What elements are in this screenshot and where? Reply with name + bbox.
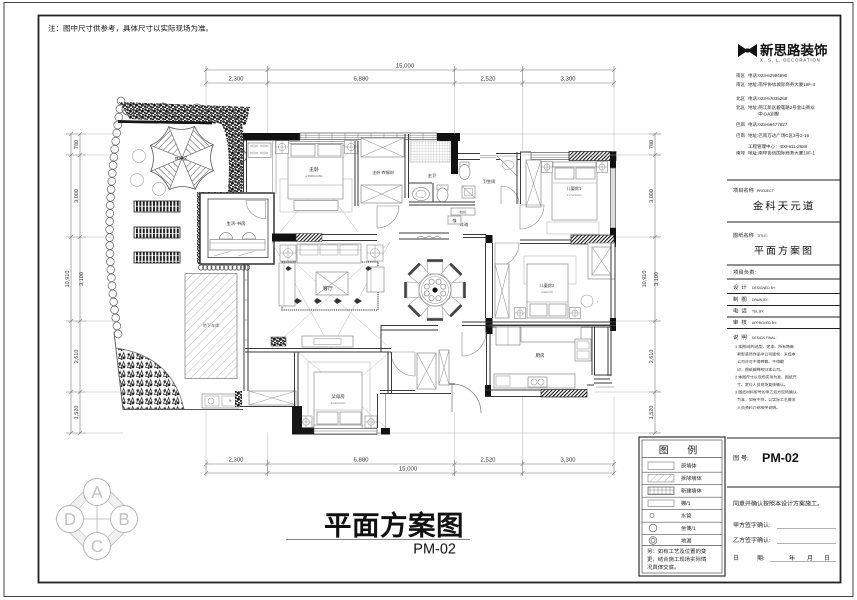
svg-text:项目负责:: 项目负责:	[733, 269, 756, 276]
svg-text:卫生间: 卫生间	[483, 179, 496, 184]
svg-text:月: 月	[807, 555, 813, 562]
svg-text:新思路装饰: 新思路装饰	[760, 43, 828, 58]
svg-text:制 图: 制 图	[733, 296, 747, 303]
svg-text:年: 年	[789, 554, 795, 562]
svg-text:日: 日	[733, 555, 739, 562]
svg-text:3.34x3.0m: 3.34x3.0m	[541, 291, 553, 294]
svg-text:寸、定位人员现场复核确认。: 寸、定位人员现场复核确认。	[735, 382, 788, 387]
svg-text:1,520: 1,520	[74, 406, 80, 420]
svg-text:TITLE:: TITLE:	[757, 234, 768, 238]
svg-text:地下车库: 地下车库	[203, 323, 220, 328]
svg-text:3,300: 3,300	[560, 457, 576, 464]
svg-text:日: 日	[824, 555, 830, 562]
svg-text:审 核: 审 核	[733, 319, 747, 326]
svg-text:6,880: 6,880	[353, 457, 369, 464]
svg-text:10,910: 10,910	[642, 271, 648, 288]
svg-text:2,520: 2,520	[480, 76, 496, 83]
svg-text:2,610: 2,610	[74, 350, 80, 364]
svg-text:X. S. L. DECORATION: X. S. L. DECORATION	[760, 58, 821, 63]
svg-text:北区: 北区	[736, 105, 745, 110]
svg-text:TEL BY:: TEL BY:	[752, 310, 764, 314]
svg-text:南坪: 南坪	[736, 151, 745, 156]
svg-text:1 本图/结构选型、定本、所有隐蔽: 1 本图/结构选型、定本、所有隐蔽	[735, 344, 794, 349]
svg-text:注：图中尺寸供参考，具体尺寸以实际现场为准。: 注：图中尺寸供参考，具体尺寸以实际现场为准。	[48, 24, 213, 33]
svg-text:拆除墙体: 拆除墙体	[681, 475, 703, 482]
svg-text:10,910: 10,910	[65, 271, 71, 288]
svg-text:为准，如有不符，以实际工艺要求: 为准，如有不符，以实际工艺要求	[735, 397, 796, 402]
svg-text:巴南: 巴南	[736, 122, 745, 127]
svg-text:地址:南坪协信城际商务大厦18F-3: 地址:南坪协信城际商务大厦18F-3	[748, 82, 816, 87]
svg-text:电话:023-62984890: 电话:023-62984890	[748, 73, 788, 78]
svg-text:电 话: 电 话	[733, 308, 747, 315]
svg-text:水管: 水管	[681, 513, 691, 520]
svg-text:休闲区: 休闲区	[175, 156, 188, 161]
svg-text:南区: 南区	[736, 73, 745, 78]
svg-text:项目名称: 项目名称	[733, 187, 754, 194]
svg-text:新建墙体: 新建墙体	[681, 488, 703, 495]
svg-text:15,000: 15,000	[399, 466, 418, 473]
svg-text:巴南: 巴南	[736, 133, 745, 138]
svg-text:3.175x3.05m: 3.175x3.05m	[567, 194, 582, 197]
svg-text:另：如有工艺及位置的变: 另：如有工艺及位置的变	[647, 548, 707, 555]
svg-text:中心A別墅: 中心A別墅	[748, 112, 780, 117]
svg-text:北区: 北区	[736, 96, 745, 101]
svg-text:坐便/1: 坐便/1	[681, 525, 696, 532]
svg-text:780: 780	[649, 140, 655, 149]
svg-text:3,300: 3,300	[560, 76, 576, 83]
svg-text:PM-02: PM-02	[413, 542, 456, 558]
svg-text:1,520: 1,520	[649, 406, 655, 420]
svg-text:洗: 洗	[228, 399, 231, 403]
svg-text:强: 强	[453, 218, 457, 223]
svg-text:儿童房2: 儿童房2	[540, 283, 556, 288]
svg-text:2 本图尺寸以现场实测为准，图纸尺: 2 本图尺寸以现场实测为准，图纸尺	[735, 374, 797, 379]
svg-text:2,610: 2,610	[649, 350, 655, 364]
svg-text:电话:023-66477827: 电话:023-66477827	[748, 122, 788, 127]
svg-text:原墙体: 原墙体	[681, 463, 697, 470]
svg-text:甲方签字确认:: 甲方签字确认:	[733, 521, 771, 529]
svg-text:客厅: 客厅	[323, 285, 333, 292]
svg-text:3,100: 3,100	[79, 272, 85, 286]
svg-text:3,000: 3,000	[74, 189, 80, 203]
svg-text:说 明: 说 明	[733, 334, 747, 341]
svg-text:DESIGN FINAL:: DESIGN FINAL:	[752, 336, 777, 340]
svg-text:地漏: 地漏	[681, 538, 691, 545]
svg-text:父母房: 父母房	[331, 394, 345, 399]
svg-text:4.3600x3.60m: 4.3600x3.60m	[305, 174, 323, 178]
svg-text:15,000: 15,000	[396, 63, 415, 70]
svg-text:儿童房1: 儿童房1	[567, 186, 583, 191]
svg-text:厨房: 厨房	[536, 353, 545, 358]
svg-text:新型装饰作品中公司版权，未经本: 新型装饰作品中公司版权，未经本	[735, 352, 796, 357]
svg-text:780: 780	[74, 140, 80, 149]
svg-text:DESIGNED BY:: DESIGNED BY:	[752, 286, 776, 290]
svg-text:鞋柜: 鞋柜	[460, 211, 468, 215]
svg-text:4.060x3.05m: 4.060x3.05m	[331, 402, 346, 405]
svg-text:人员资料介绍相关说明。: 人员资料介绍相关说明。	[735, 405, 780, 410]
svg-text:图 号:: 图 号:	[733, 455, 749, 462]
svg-text:地址:巴南万达广场C区3号2-16: 地址:巴南万达广场C区3号2-16	[748, 133, 810, 138]
svg-text:B: B	[118, 510, 129, 529]
svg-text:棚/1: 棚/1	[681, 500, 691, 507]
svg-text:南区: 南区	[736, 82, 745, 87]
svg-text:PROJECT:: PROJECT:	[757, 189, 775, 193]
svg-text:图 例: 图 例	[659, 445, 706, 457]
svg-text:2,300: 2,300	[228, 457, 244, 464]
svg-text:3,000: 3,000	[649, 189, 655, 203]
svg-text:平面方案图: 平面方案图	[324, 510, 464, 541]
svg-text:平面方案图: 平面方案图	[754, 245, 814, 257]
svg-text:公司许可不得转载、不得翻: 公司许可不得转载、不得翻	[735, 359, 784, 364]
svg-text:PM-02: PM-02	[762, 451, 799, 465]
svg-text:电话:023-67035268: 电话:023-67035268	[748, 96, 788, 101]
svg-text:APPROVED BY:: APPROVED BY:	[752, 321, 777, 325]
svg-text:地址:南坪协信国际商务大厦10F-1: 地址:南坪协信国际商务大厦10F-1	[748, 151, 816, 156]
svg-text:D: D	[64, 510, 76, 529]
svg-text:更，结合施工现场实际情: 更，结合施工现场实际情	[647, 556, 707, 563]
svg-text:2,300: 2,300	[228, 76, 244, 83]
svg-text:主卧-衣帽间: 主卧-衣帽间	[372, 170, 393, 175]
svg-text:6,880: 6,880	[353, 76, 369, 83]
svg-text:2,520: 2,520	[480, 457, 496, 464]
svg-text:DRAW BY:: DRAW BY:	[752, 298, 769, 302]
svg-text:印，图纸解释权归本公司。: 印，图纸解释权归本公司。	[735, 367, 784, 372]
svg-text:乙方签字确认:: 乙方签字确认:	[733, 536, 771, 544]
svg-text:期:: 期:	[757, 555, 765, 562]
svg-text:A: A	[91, 483, 103, 502]
svg-text:金科天元道: 金科天元道	[753, 201, 816, 213]
svg-text:设 计: 设 计	[733, 284, 747, 291]
svg-text:况具体交底。: 况具体交底。	[647, 564, 679, 571]
svg-text:同意并确认按照本设计方案施工。: 同意并确认按照本设计方案施工。	[733, 500, 823, 508]
svg-text:地址:两江新区碧莲路2号金山商业: 地址:两江新区碧莲路2号金山商业	[748, 105, 815, 110]
svg-text:工程管理中心：400-611-2688: 工程管理中心：400-611-2688	[748, 144, 808, 149]
svg-text:3,100: 3,100	[654, 272, 660, 286]
svg-text:主卫: 主卫	[428, 173, 436, 178]
svg-text:3 图纸材料型号的甲乙双方现场确认: 3 图纸材料型号的甲乙双方现场确认	[735, 390, 797, 395]
svg-text:T: T	[597, 301, 599, 304]
svg-text:生活-书房: 生活-书房	[226, 221, 246, 226]
svg-text:图纸名称: 图纸名称	[733, 232, 754, 239]
svg-text:主卧: 主卧	[309, 166, 319, 173]
svg-text:C: C	[91, 537, 103, 556]
